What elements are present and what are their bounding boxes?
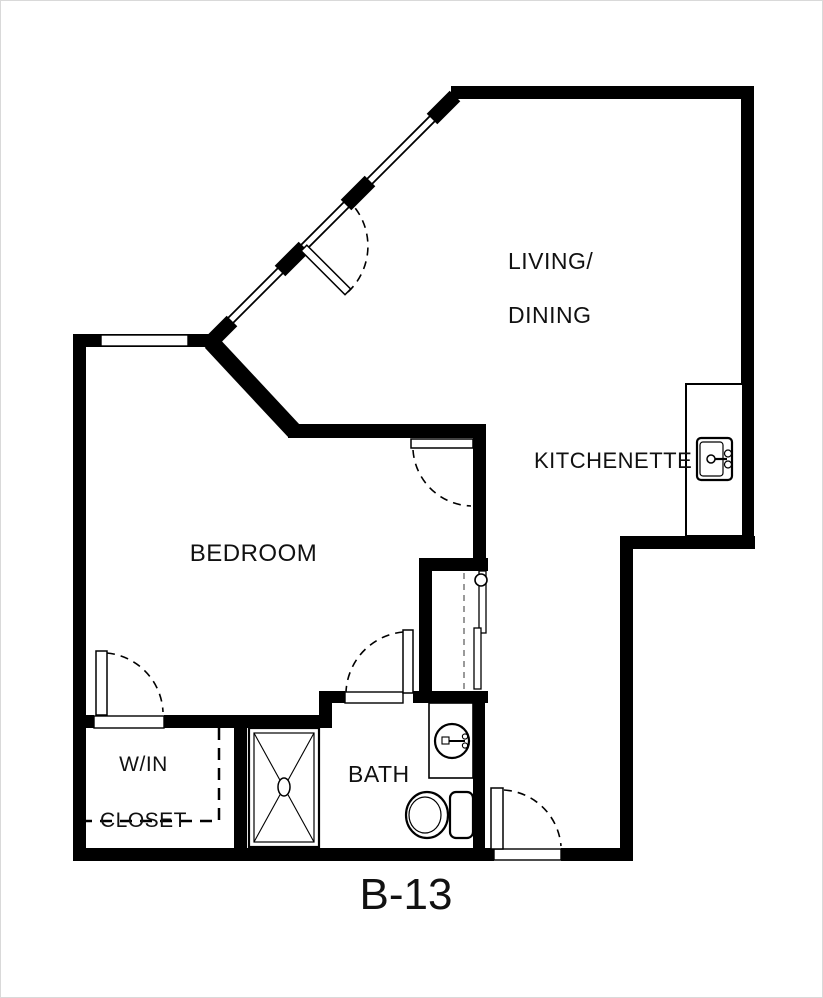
closet-line2: CLOSET bbox=[100, 809, 187, 832]
wall-top bbox=[451, 86, 754, 99]
kitchen-faucet-handle bbox=[725, 450, 732, 457]
window-glazing-inner bbox=[212, 100, 456, 344]
closet-line1: W/IN bbox=[119, 753, 168, 776]
living-window-wall bbox=[206, 96, 456, 345]
bathroom-vanity bbox=[429, 703, 473, 778]
entry-door-leaf bbox=[491, 788, 503, 849]
entry-door-swing-arc bbox=[504, 790, 561, 846]
wall-segment bbox=[432, 96, 455, 119]
toilet bbox=[406, 792, 473, 838]
wall-hall-vertical bbox=[473, 438, 486, 571]
bedroom-door-leaf bbox=[411, 439, 473, 448]
wall-kitchenette-step bbox=[620, 536, 755, 549]
bedroom-window bbox=[101, 335, 188, 346]
wall-segment bbox=[208, 321, 232, 345]
wall-utility-left bbox=[419, 558, 432, 703]
bedroom-door-swing-arc bbox=[413, 450, 471, 506]
unit-number-title: B-13 bbox=[321, 870, 491, 920]
living-line2: DINING bbox=[508, 302, 592, 328]
utility-closet bbox=[464, 571, 487, 689]
wall-bottom-left bbox=[73, 848, 494, 861]
entry-door-threshold bbox=[494, 849, 561, 860]
wall-closet-top-left bbox=[73, 715, 94, 728]
utility-door-knob bbox=[475, 574, 487, 586]
room-label-bath: BATH bbox=[348, 761, 410, 788]
room-label-kitchenette: KITCHENETTE bbox=[534, 447, 692, 474]
shower-drain bbox=[278, 778, 290, 796]
wall-corridor bbox=[620, 536, 633, 861]
wall-bath-stub bbox=[319, 691, 332, 717]
bath-door-threshold bbox=[345, 692, 403, 703]
toilet-tank bbox=[450, 792, 473, 838]
wall-bedroom-living bbox=[288, 424, 486, 438]
bathroom-faucet-handle bbox=[462, 734, 467, 739]
kitchen-sink bbox=[697, 438, 732, 480]
patio-door bbox=[301, 201, 368, 295]
kitchen-faucet-handle bbox=[725, 461, 732, 468]
closet-door-threshold bbox=[94, 716, 164, 728]
bathroom-faucet-handle bbox=[462, 743, 467, 748]
bathroom-sink-drain bbox=[442, 737, 449, 744]
wall-closet-shower-divider bbox=[234, 715, 247, 861]
room-label-win-closet: W/IN CLOSET bbox=[81, 751, 206, 835]
shower bbox=[249, 728, 319, 847]
floor-plan-canvas: LIVING/ DINING KITCHENETTE BEDROOM W/IN … bbox=[0, 0, 823, 998]
utility-door-panel bbox=[474, 628, 481, 689]
wall-closet-top-right bbox=[164, 715, 332, 728]
bath-door bbox=[346, 630, 413, 693]
room-label-living-dining: LIVING/ DINING bbox=[508, 248, 593, 329]
floor-plan-drawing bbox=[1, 1, 822, 997]
entry-door bbox=[491, 788, 561, 849]
kitchenette-counter bbox=[686, 384, 743, 536]
closet-door-swing-arc bbox=[107, 653, 163, 712]
toilet-bowl bbox=[406, 792, 448, 838]
bedroom-door bbox=[411, 439, 473, 506]
bath-door-leaf bbox=[403, 630, 413, 693]
bath-door-swing-arc bbox=[346, 632, 403, 692]
closet-door-leaf bbox=[96, 651, 107, 715]
living-line1: LIVING/ bbox=[508, 248, 593, 274]
room-label-bedroom: BEDROOM bbox=[171, 540, 336, 567]
kitchen-faucet-base bbox=[707, 455, 715, 463]
closet-door bbox=[96, 651, 163, 715]
patio-door-leaf bbox=[301, 245, 350, 294]
patio-door-swing-arc bbox=[348, 201, 368, 292]
wall-bath-entry-divider bbox=[473, 703, 485, 854]
wall-bath-top-right bbox=[413, 691, 488, 703]
window-glazing-outer bbox=[206, 96, 450, 340]
wall-diagonal-thick bbox=[211, 342, 294, 431]
